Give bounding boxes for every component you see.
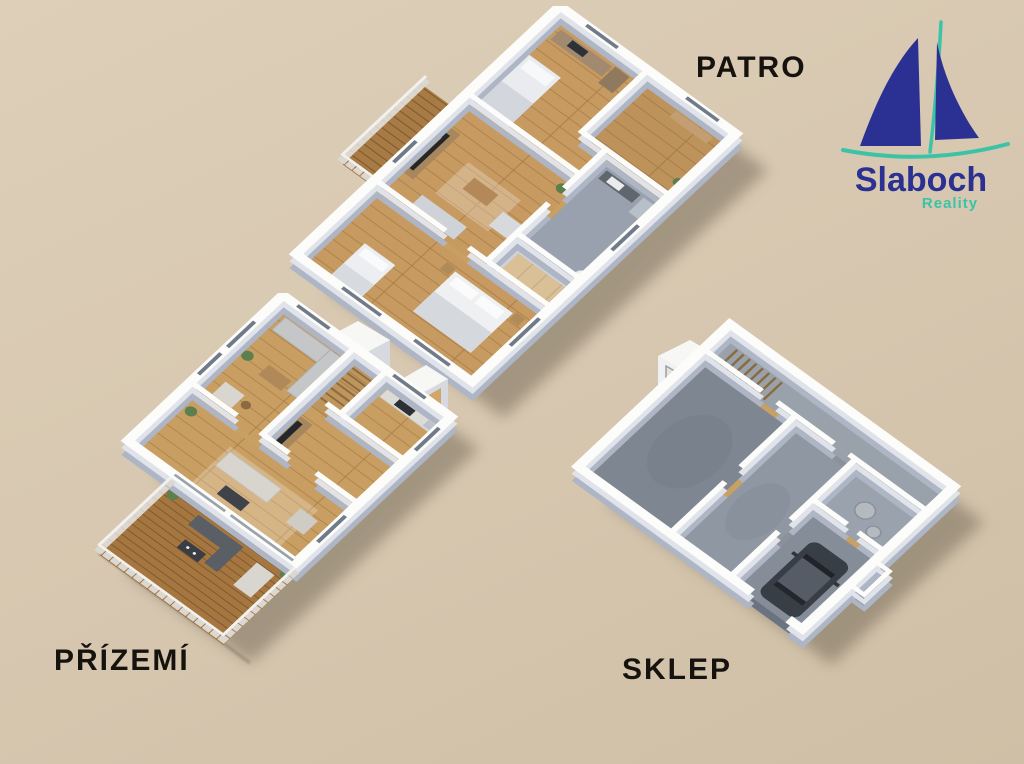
- logo-subtitle: Reality: [922, 195, 978, 212]
- jib-sail: [935, 42, 979, 140]
- main-sail: [860, 38, 921, 146]
- real-estate-floorplan-poster: PATRO PŘÍZEMÍ SKLEP Slaboch Reality: [0, 0, 1024, 764]
- basement-label: SKLEP: [622, 653, 732, 687]
- agency-logo: Slaboch Reality: [828, 8, 1018, 213]
- sailboat-icon: Slaboch Reality: [828, 8, 1018, 213]
- ground-floor-label: PŘÍZEMÍ: [54, 644, 190, 678]
- upper-floor-label: PATRO: [696, 51, 807, 85]
- logo-title: Slaboch: [855, 161, 987, 199]
- ground-floor-3d-floorplan: [28, 293, 488, 753]
